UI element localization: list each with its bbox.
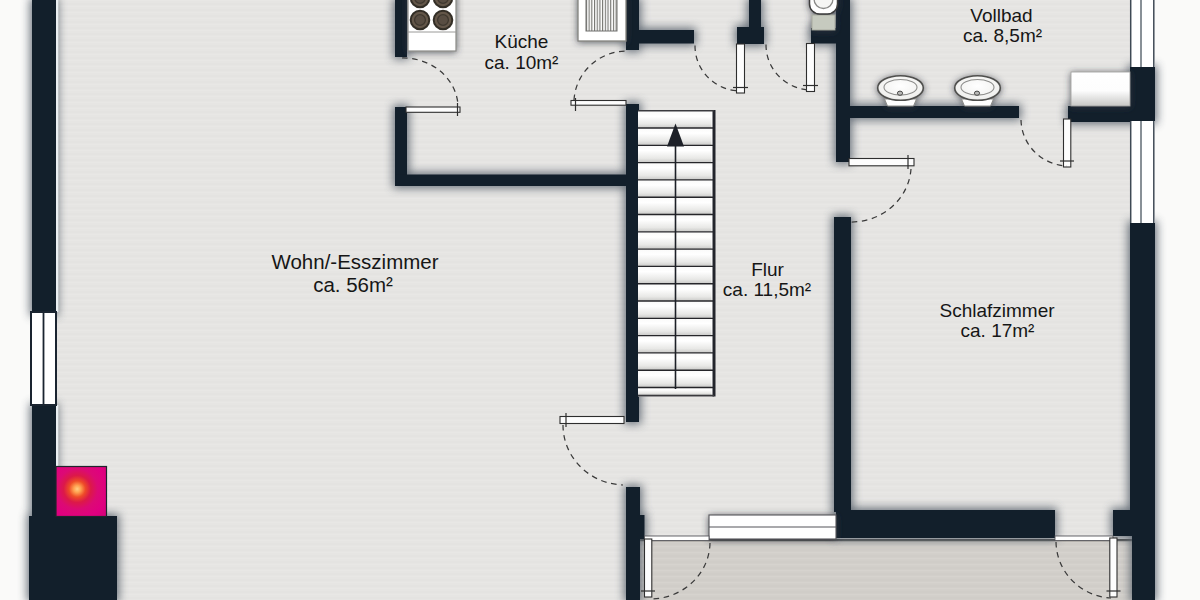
svg-text:ca. 56m²: ca. 56m²: [313, 273, 393, 296]
svg-text:Wohn/-Esszimmer: Wohn/-Esszimmer: [271, 250, 438, 273]
svg-text:ca. 8,5m²: ca. 8,5m²: [963, 25, 1042, 46]
svg-text:ca. 11,5m²: ca. 11,5m²: [723, 279, 811, 300]
svg-text:ca. 17m²: ca. 17m²: [961, 320, 1035, 341]
svg-text:ca. 10m²: ca. 10m²: [485, 52, 559, 73]
svg-text:Vollbad: Vollbad: [970, 5, 1032, 26]
svg-text:Schlafzimmer: Schlafzimmer: [939, 300, 1055, 321]
svg-text:Flur: Flur: [751, 259, 784, 280]
svg-text:Küche: Küche: [495, 31, 549, 52]
